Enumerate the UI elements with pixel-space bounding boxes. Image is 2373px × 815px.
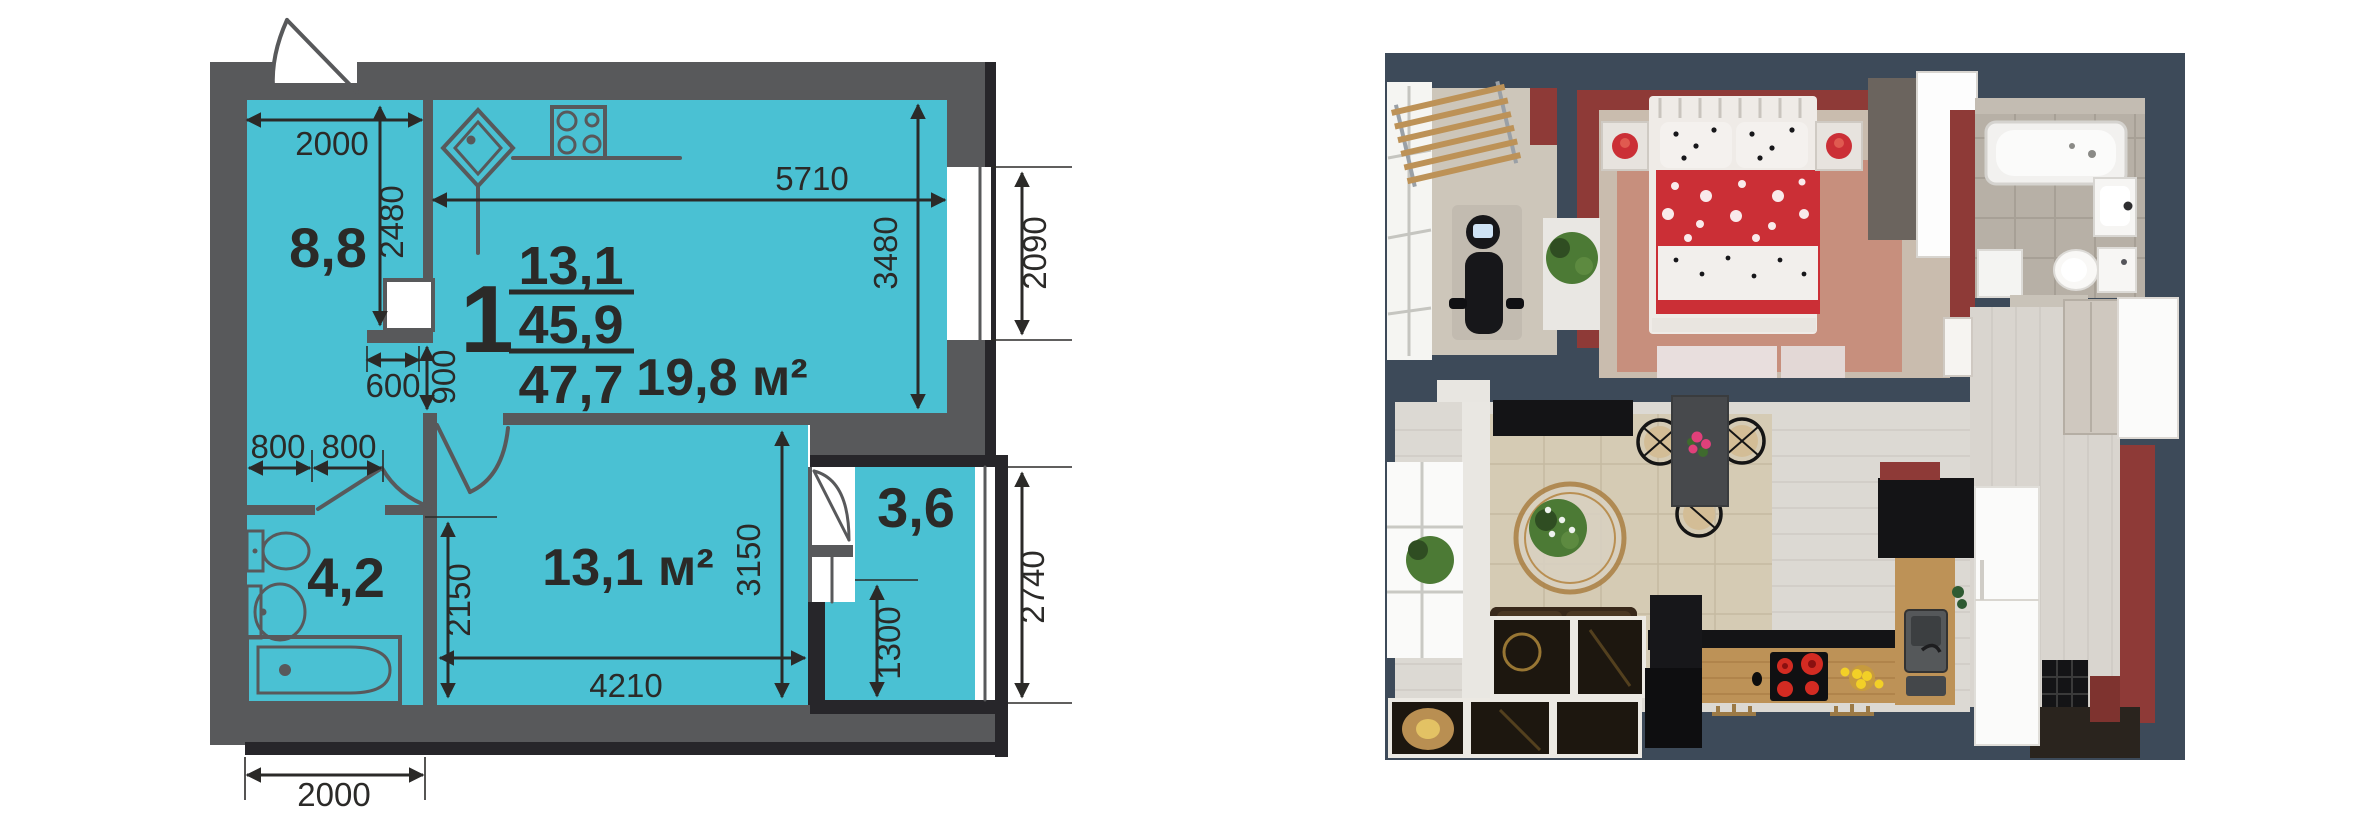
balcony-window-icon (812, 557, 853, 602)
fridge-icon (1975, 487, 2039, 745)
dim-hall-depth: 2480 (373, 185, 410, 258)
dim-kitchen-window: 2090 (1016, 216, 1053, 289)
hall-red-bench (2090, 676, 2120, 722)
dim-niche-width: 600 (365, 367, 420, 404)
bathroom-render (1975, 98, 2145, 307)
apartment-living-area: 13,1 (518, 236, 623, 296)
corner-plant (1543, 218, 1600, 330)
bed (1649, 96, 1820, 334)
nightstand-left (1602, 122, 1648, 170)
balcony-door-icon (812, 467, 853, 545)
apartment-number: 1 (460, 266, 513, 373)
bed-footboard (1652, 318, 1816, 332)
washing-machine-icon (1978, 250, 2022, 297)
balcony-red-wall (1530, 88, 1557, 145)
dim-balcony-depth: 1300 (870, 606, 907, 679)
dim-bedroom-depth-left: 2150 (440, 563, 477, 636)
nightstand-right (1816, 122, 1862, 170)
bathroom-door-leaf (1944, 318, 1972, 376)
vent-shaft-icon (385, 280, 433, 330)
dim-balcony-height: 2740 (1014, 550, 1051, 623)
bathroom-area-label: 4,2 (307, 546, 385, 609)
coffee-table-icon (1516, 484, 1624, 592)
kitchen-living-area-label: 19,8 м² (636, 349, 807, 407)
exercise-bike-icon (1449, 205, 1524, 340)
dim-hall-width: 2000 (295, 125, 368, 162)
hall-wardrobe (2064, 298, 2178, 438)
pillow-right (1736, 122, 1808, 168)
dim-kitchen-depth: 3480 (867, 216, 904, 289)
dim-bathroom-width: 2000 (297, 776, 370, 813)
bedroom-red-wall-right (1950, 110, 1975, 330)
floor-plan-2d: 2000 2480 5710 3480 2090 600 900 800 800 (210, 20, 1072, 813)
kitchen-cabinet-black (1878, 478, 1974, 558)
page-image: 2000 2480 5710 3480 2090 600 900 800 800 (0, 0, 2373, 815)
kitchen-window-icon (947, 167, 991, 340)
kitchen-sink-render-icon (1905, 610, 1947, 696)
balcony-glazing-icon (975, 467, 995, 700)
bathroom-sink-icon (2094, 178, 2136, 236)
bathroom-room-area (247, 515, 423, 705)
hall-area-label: 8,8 (289, 216, 367, 279)
dim-passage: 900 (425, 349, 462, 404)
balcony-gym (1387, 80, 1557, 360)
bedroom-render (1543, 72, 1977, 386)
apartment-total-area: 47,7 (518, 355, 623, 415)
bathtub-render-icon (1986, 122, 2126, 184)
tv-icon (1493, 400, 1633, 436)
living-brick-wall (1462, 402, 1490, 702)
shoe-rack-icon (2042, 660, 2088, 710)
screenshot-canvas: 2000 2480 5710 3480 2090 600 900 800 800 (0, 0, 2373, 815)
render-3d (1385, 53, 2185, 760)
balcony-area-label: 3,6 (877, 476, 955, 539)
dim-bedroom-depth-right: 3150 (730, 523, 767, 596)
living-window (1387, 462, 1463, 658)
duvet-fold (1658, 246, 1818, 300)
kitchen-counter (1702, 648, 1902, 703)
dim-door-right: 800 (321, 428, 376, 465)
apartment-usable-area: 45,9 (518, 295, 623, 355)
dim-bedroom-width: 4210 (589, 667, 662, 704)
table-plant-icon (1529, 499, 1587, 557)
dim-door-left: 800 (250, 428, 305, 465)
entry-doormat (2030, 707, 2140, 758)
bedroom-area-label: 13,1 м² (542, 539, 713, 597)
hall-red-wall (2120, 445, 2155, 723)
dim-kitchen-width: 5710 (775, 160, 848, 197)
cooktop-icon (1770, 652, 1828, 701)
